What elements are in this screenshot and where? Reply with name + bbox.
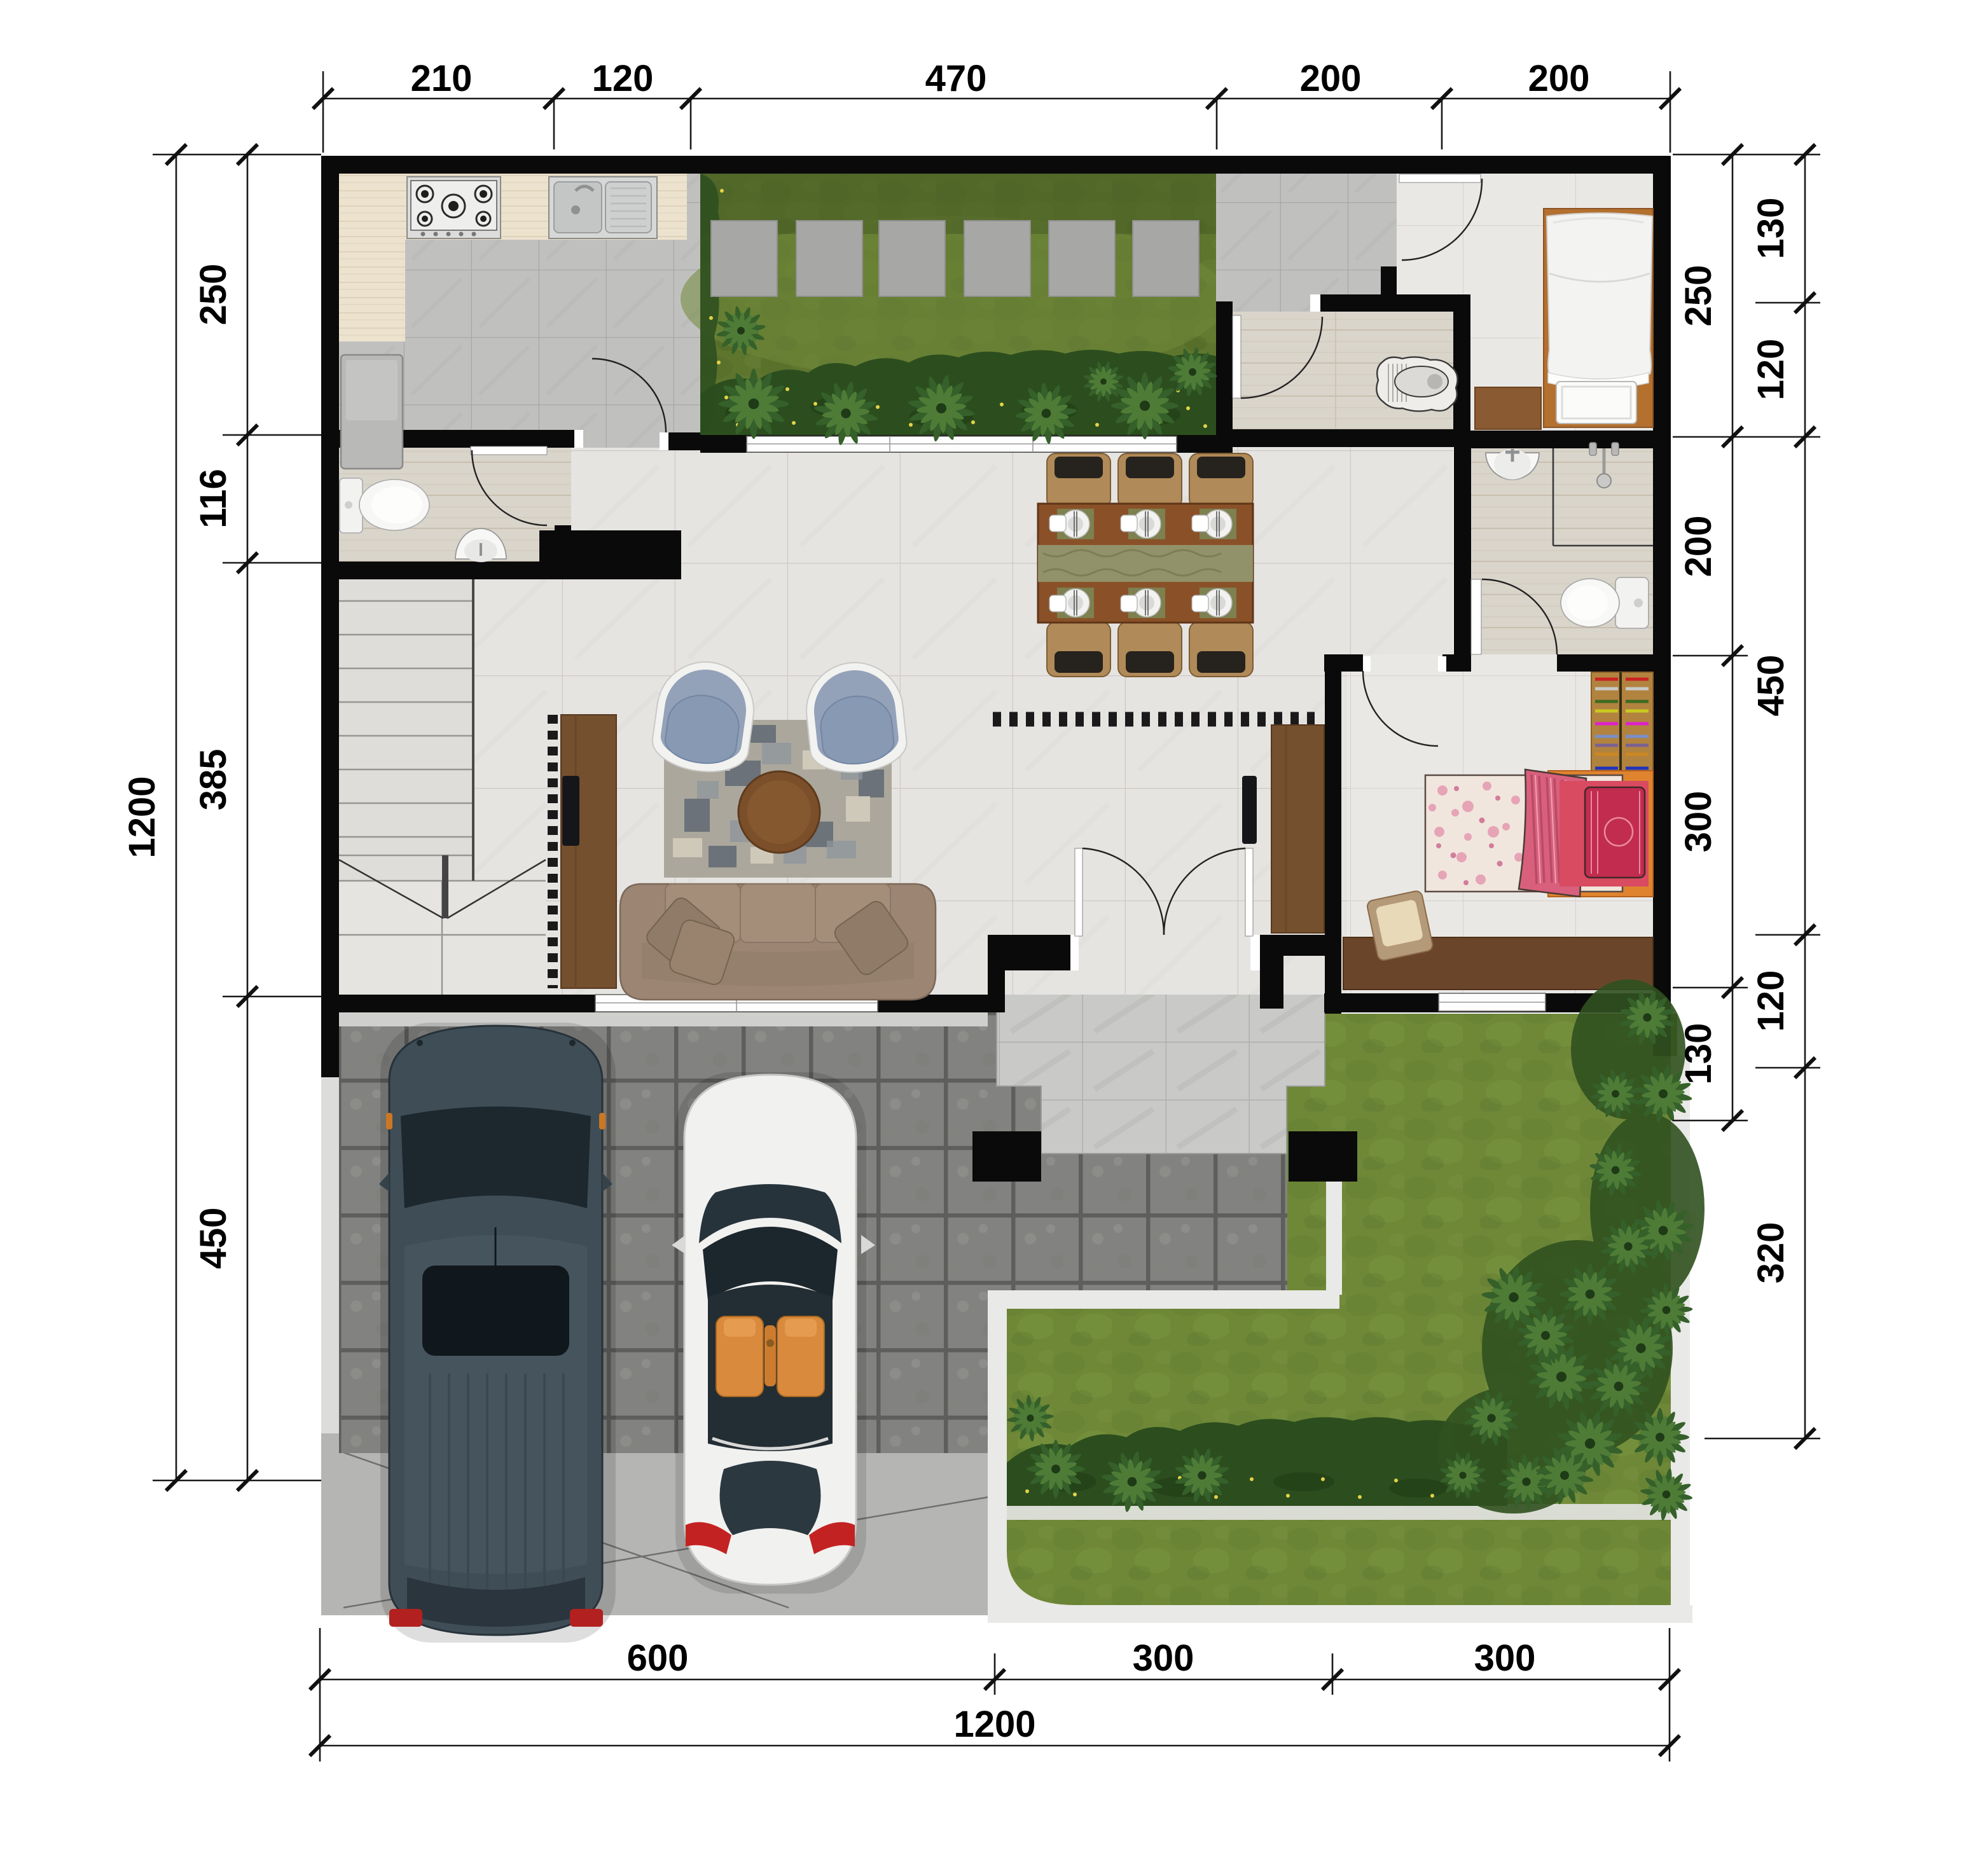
svg-text:300: 300 xyxy=(1678,791,1719,853)
svg-text:120: 120 xyxy=(1750,339,1792,401)
svg-text:250: 250 xyxy=(193,264,234,326)
svg-text:130: 130 xyxy=(1678,1023,1719,1085)
svg-text:600: 600 xyxy=(627,1638,689,1679)
svg-text:300: 300 xyxy=(1474,1638,1536,1679)
svg-text:470: 470 xyxy=(925,58,987,99)
svg-text:300: 300 xyxy=(1133,1638,1194,1679)
svg-text:250: 250 xyxy=(1678,265,1719,327)
svg-text:200: 200 xyxy=(1300,58,1362,99)
svg-text:130: 130 xyxy=(1750,198,1792,259)
svg-text:120: 120 xyxy=(1750,970,1792,1032)
svg-text:200: 200 xyxy=(1678,516,1719,577)
svg-text:450: 450 xyxy=(193,1208,234,1269)
svg-text:1200: 1200 xyxy=(121,776,163,858)
svg-text:320: 320 xyxy=(1750,1222,1792,1284)
svg-text:120: 120 xyxy=(592,58,654,99)
svg-text:116: 116 xyxy=(193,469,234,528)
svg-text:210: 210 xyxy=(411,58,473,99)
svg-text:1200: 1200 xyxy=(953,1704,1035,1745)
svg-text:200: 200 xyxy=(1528,58,1590,99)
svg-text:450: 450 xyxy=(1750,655,1792,717)
svg-text:385: 385 xyxy=(193,749,234,811)
